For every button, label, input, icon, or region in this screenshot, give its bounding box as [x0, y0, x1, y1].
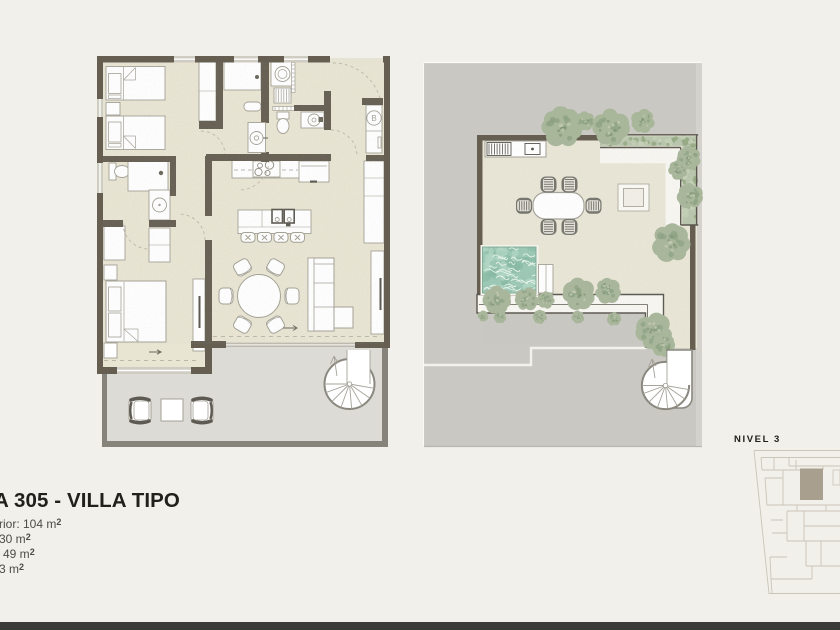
svg-text:A 305 - VILLA TIPO: A 305 - VILLA TIPO: [0, 489, 180, 512]
svg-text:NIVEL 3: NIVEL 3: [734, 434, 781, 445]
svg-text:rior: 104 m2: rior: 104 m2: [0, 517, 61, 531]
